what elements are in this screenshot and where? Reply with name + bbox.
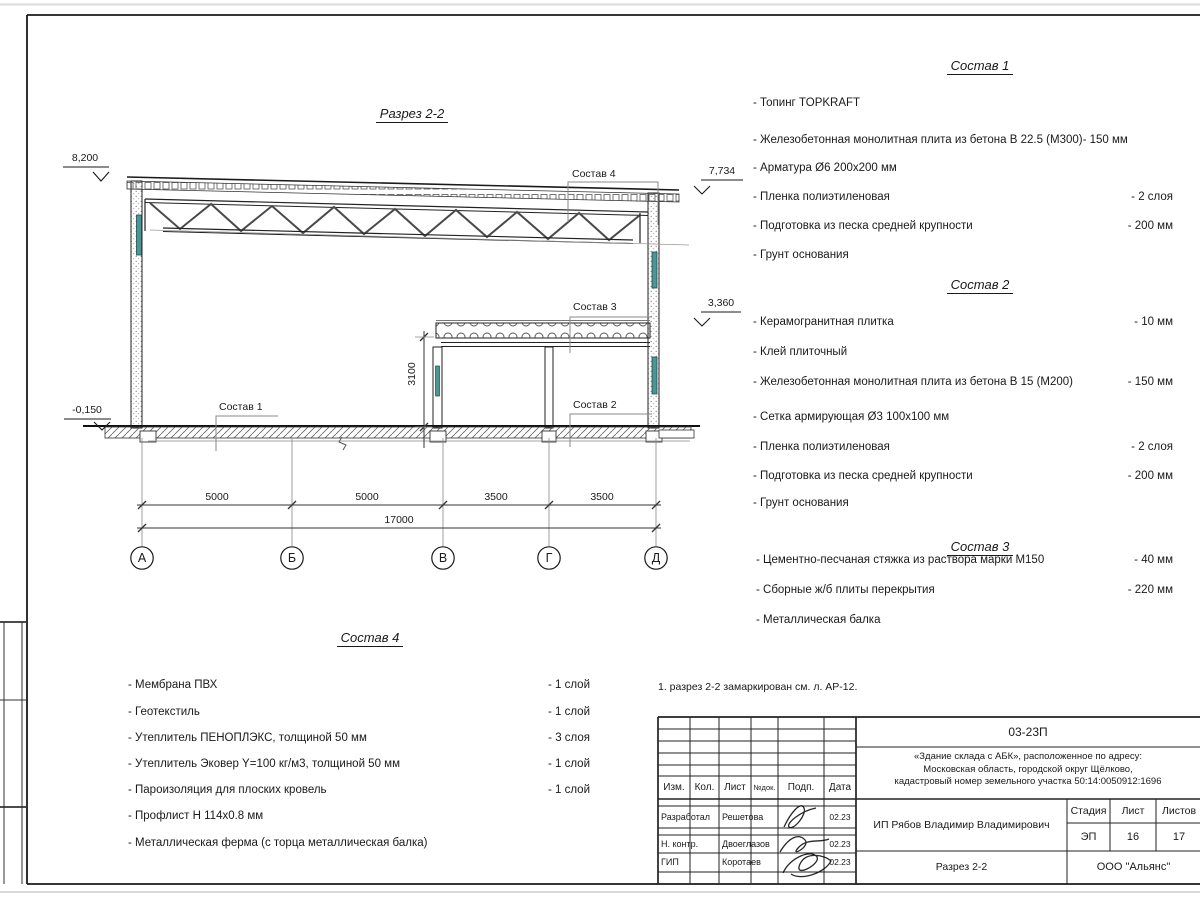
drawing-sheet: { "drawing": { "title": "Разрез 2-2", "n… [0, 0, 1200, 900]
roof [127, 177, 679, 202]
tb-name-1: Решетова [722, 806, 777, 828]
axis-bubbles [131, 547, 667, 569]
dim-span-4: 3500 [577, 491, 627, 503]
callout-sostav3: Состав 3 [573, 301, 617, 313]
axis-a: А [130, 546, 154, 570]
sostav2-list: - Керамогранитная плитка- 10 мм - Клей п… [753, 316, 1173, 516]
tb-company: ООО "Альянс" [1067, 851, 1200, 884]
tb-project-code: 03-23П [856, 717, 1200, 747]
roof-truss [145, 199, 689, 245]
sostav4-heading: Состав 4 [270, 629, 470, 647]
axis-g: Г [537, 546, 561, 570]
dim-total: 17000 [369, 514, 429, 526]
callout-sostav4: Состав 4 [572, 168, 616, 180]
tb-name-2: Двоеглазов [722, 835, 777, 853]
mezzanine [433, 321, 650, 429]
tb-header-ndok: №док. [751, 776, 778, 799]
tb-stage-label: Стадия [1067, 799, 1110, 823]
dim-span-2: 5000 [342, 491, 392, 503]
tb-date-3: 02.23 [824, 853, 856, 872]
axis-v: В [431, 546, 455, 570]
callout-sostav2: Состав 2 [573, 399, 617, 411]
tb-sheets-value: 17 [1156, 823, 1200, 851]
sostav1-list: - Топинг TOPKRAFT - Железобетонная монол… [753, 97, 1173, 267]
floor-slab [83, 426, 700, 450]
axis-d: Д [644, 546, 668, 570]
embedded-column-right-upper [652, 252, 657, 288]
column-axis-g [545, 347, 553, 428]
embedded-column-right-lower [652, 357, 657, 394]
tb-client: ИП Рябов Владимир Владимирович [856, 799, 1067, 851]
tb-header-podp: Подп. [778, 776, 824, 799]
drawing-note: 1. разрез 2-2 замаркирован см. л. АР-12. [658, 681, 857, 693]
tb-sheets-label: Листов [1156, 799, 1200, 823]
tb-address-line2: Московская область, городской округ Щёлк… [856, 764, 1200, 777]
tb-sheet-label: Лист [1110, 799, 1156, 823]
dim-span-1: 5000 [192, 491, 242, 503]
dim-height-3100: 3100 [406, 354, 418, 394]
tb-doc-title: Разрез 2-2 [856, 851, 1067, 884]
tb-stage-value: ЭП [1067, 823, 1110, 851]
tb-header-data: Дата [824, 776, 856, 799]
drawing-title: Разрез 2-2 [342, 105, 482, 123]
tb-date-1: 02.23 [824, 806, 856, 828]
elevation-8200: 8,200 [60, 152, 110, 164]
tb-header-kol: Кол. [690, 776, 719, 799]
tb-project-address: «Здание склада с АБК», расположенное по … [856, 751, 1200, 789]
tb-address-line1: «Здание склада с АБК», расположенное по … [856, 751, 1200, 764]
tb-role-3: ГИП [661, 853, 718, 872]
elevation-3360: 3,360 [698, 297, 744, 309]
tb-date-2: 02.23 [824, 835, 856, 853]
tb-header-list: Лист [719, 776, 751, 799]
axis-b: Б [280, 546, 304, 570]
left-margin-table [0, 622, 27, 884]
elevation-7734: 7,734 [699, 165, 745, 177]
tb-name-3: Коротаев [722, 853, 777, 872]
tb-role-2: Н. контр. [661, 835, 718, 853]
callout-sostav1: Состав 1 [219, 401, 263, 413]
dim-span-3: 3500 [471, 491, 521, 503]
sostav4-list: - Мембрана ПВХ- 1 слой - Геотекстиль- 1 … [128, 679, 590, 859]
tb-sheet-value: 16 [1110, 823, 1156, 851]
tb-address-line3: кадастровый номер земельного участка 50:… [856, 776, 1200, 789]
tb-role-1: Разработал [661, 806, 718, 828]
elevation-minus0150: -0,150 [62, 404, 112, 416]
tb-header-izm: Изм. [658, 776, 690, 799]
sostav2-heading: Состав 2 [880, 276, 1080, 294]
elevation-marks [63, 167, 743, 430]
sostav1-heading: Состав 1 [880, 57, 1080, 75]
embedded-column-left [137, 215, 142, 255]
sostav3-list: - Цементно-песчаная стяжка из раствора м… [756, 554, 1173, 644]
